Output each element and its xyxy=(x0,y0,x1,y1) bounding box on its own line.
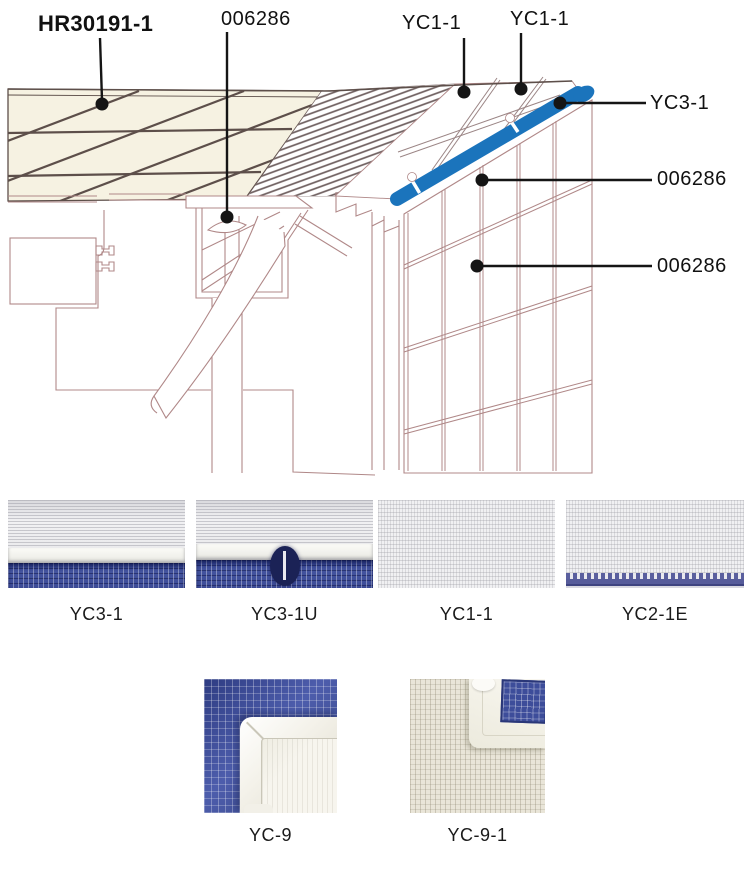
sample-caption: YC-9-1 xyxy=(410,825,545,846)
u-slot-slit xyxy=(283,551,286,580)
corner-molding xyxy=(240,717,337,813)
sample-caption: YC2-1E xyxy=(566,604,744,625)
clip-profile xyxy=(96,262,114,271)
callout-006286-low: 006286 xyxy=(657,255,727,278)
ribbed-texture xyxy=(196,500,373,544)
callout-006286-mid: 006286 xyxy=(657,168,727,191)
smooth-band xyxy=(8,548,185,563)
white-mesh-texture xyxy=(378,500,555,588)
sample-caption: YC3-1 xyxy=(8,604,185,625)
ribbed-texture xyxy=(8,500,185,548)
blue-edge-strip xyxy=(566,579,744,586)
side-panel-profile xyxy=(10,238,96,304)
molding-face xyxy=(261,738,337,813)
edge-piece xyxy=(244,804,273,813)
joint-profile-section xyxy=(8,192,399,475)
blue-mosaic-chip xyxy=(500,680,545,724)
joint-detail-drawing xyxy=(0,0,750,490)
sample-photo-yc3-1u xyxy=(196,500,373,588)
callout-hr30191-1: HR30191-1 xyxy=(38,11,153,37)
sample-photo-yc-9 xyxy=(204,679,337,813)
sample-photo-yc1-1 xyxy=(378,500,555,588)
callout-yc1-1-left: YC1-1 xyxy=(402,12,461,35)
page: HR30191-1 006286 YC1-1 YC1-1 YC3-1 00628… xyxy=(0,0,750,875)
sample-photo-yc3-1 xyxy=(8,500,185,588)
sample-caption: YC3-1U xyxy=(196,604,373,625)
bottom-edge-line xyxy=(566,586,744,588)
sample-photo-yc-9-1 xyxy=(410,679,545,813)
callout-yc1-1-right: YC1-1 xyxy=(510,8,569,31)
joint-cap-plate xyxy=(186,196,312,208)
u-slot xyxy=(270,546,300,586)
clip-profile xyxy=(96,246,114,255)
callout-yc3-1: YC3-1 xyxy=(650,92,709,115)
callout-006286-top: 006286 xyxy=(221,8,291,31)
sample-caption: YC-9 xyxy=(204,825,337,846)
sample-photo-yc2-1e xyxy=(566,500,744,588)
blue-mesh-texture xyxy=(8,563,185,588)
sample-caption: YC1-1 xyxy=(378,604,555,625)
